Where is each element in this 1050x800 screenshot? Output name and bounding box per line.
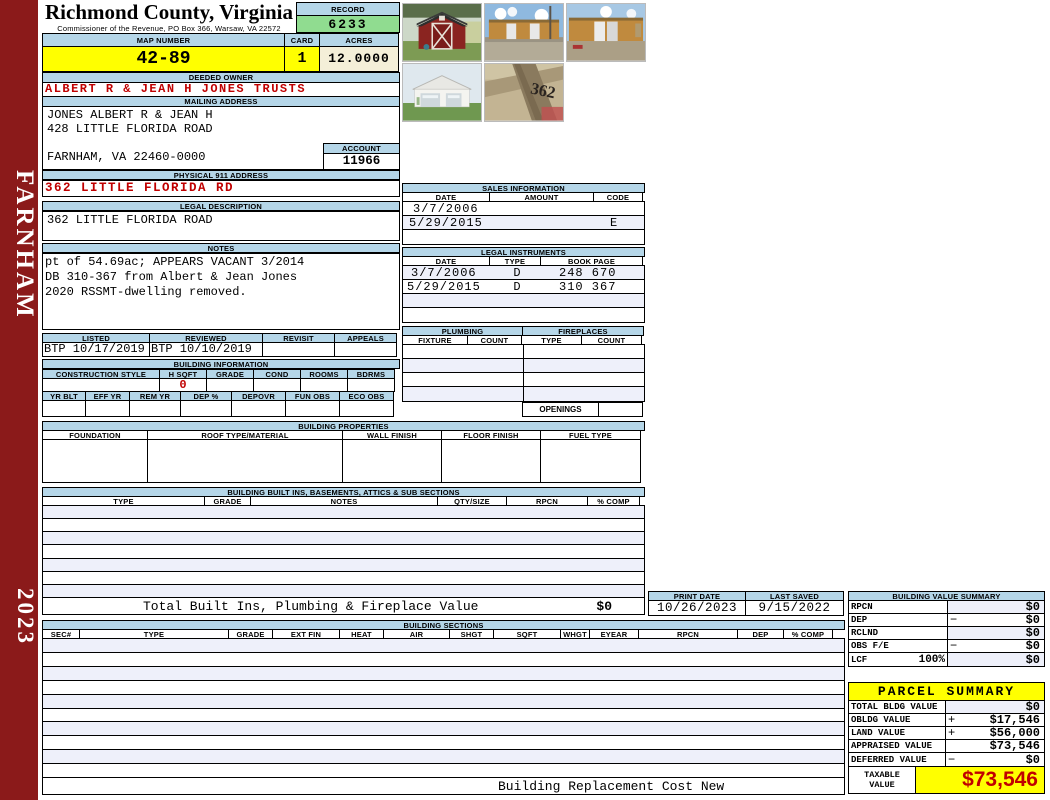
legal-description-label: LEGAL DESCRIPTION	[42, 201, 400, 211]
building-information-title: BUILDING INFORMATION	[42, 359, 400, 369]
yrblt-value	[42, 400, 86, 417]
plumbing-row	[403, 359, 644, 373]
bi-notes-header: NOTES	[250, 496, 438, 506]
sales-information: SALES INFORMATION DATE AMOUNT CODE 3/7/2…	[402, 183, 645, 245]
table-row	[43, 545, 644, 558]
li-type-header: TYPE	[489, 256, 541, 266]
air-header: AIR	[383, 629, 450, 639]
photo-empty-slot	[566, 63, 646, 121]
table-row	[43, 532, 644, 545]
mailing-line: 428 LITTLE FLORIDA ROAD	[47, 122, 395, 136]
plumbing-fireplaces-col-headers: FIXTURE COUNT TYPE COUNT	[402, 335, 645, 345]
parcel-operator: −	[946, 753, 960, 767]
sec-header: SEC#	[42, 629, 80, 639]
record-label: RECORD	[296, 2, 400, 16]
parcel-row: LAND VALUE +$56,000	[848, 726, 1045, 740]
bvs-row: LCF100% $0	[848, 652, 1045, 667]
plumbing-row	[403, 345, 644, 359]
legal-instrument-row: 5/29/2015 D 310 367	[403, 280, 644, 294]
parcel-row: TOTAL BLDG VALUE $0	[848, 700, 1045, 714]
table-row	[43, 736, 844, 750]
table-row	[43, 559, 644, 572]
building-sections: BUILDING SECTIONS SEC# TYPE GRADE EXT FI…	[42, 620, 845, 795]
parcel-operator: +	[946, 713, 960, 727]
bvs-row: DEP −$0	[848, 613, 1045, 627]
bvs-operator: −	[948, 613, 962, 627]
bvs-value: $0	[962, 626, 1044, 640]
plumbing-count-header: COUNT	[467, 335, 522, 345]
bvs-lcf-percent: 100%	[919, 654, 945, 666]
dep-pct-value	[180, 400, 232, 417]
legal-instruments: LEGAL INSTRUMENTS DATE TYPE BOOK PAGE 3/…	[402, 247, 645, 323]
table-row	[43, 695, 844, 709]
table-row	[43, 667, 844, 681]
remyr-value	[129, 400, 181, 417]
parcel-label: LAND VALUE	[848, 726, 946, 740]
mailing-address-box: JONES ALBERT R & JEAN H 428 LITTLE FLORI…	[42, 106, 400, 170]
photo-tan-storage-buildings-2[interactable]	[566, 3, 646, 62]
photo-grid: 362	[402, 3, 648, 122]
fixture-header: FIXTURE	[402, 335, 468, 345]
photo-post-with-362-number[interactable]: 362	[484, 63, 564, 122]
acres-label: ACRES	[319, 33, 399, 47]
parcel-row: APPRAISED VALUE $73,546	[848, 739, 1045, 753]
physical-address-value: 362 LITTLE FLORIDA RD	[42, 180, 400, 197]
physical-address-label: PHYSICAL 911 ADDRESS	[42, 170, 400, 180]
table-row	[43, 585, 644, 597]
acres-value: 12.0000	[319, 46, 399, 72]
li-bookpage: 310 367	[543, 280, 643, 294]
li-type: D	[491, 280, 543, 294]
card-label: CARD	[284, 33, 320, 47]
legal-instruments-rows: 3/7/2006 D 248 670 5/29/2015 D 310 367	[402, 265, 645, 323]
li-type: D	[491, 266, 543, 280]
bvs-operator: −	[948, 639, 962, 653]
bs-type-header: TYPE	[79, 629, 229, 639]
parcel-summary-rows: TOTAL BLDG VALUE $0 OBLDG VALUE +$17,546…	[848, 700, 1045, 794]
parcel-value: $17,546	[960, 713, 1044, 727]
legal-instrument-row	[403, 294, 644, 308]
parcel-summary-title: PARCEL SUMMARY	[848, 682, 1045, 701]
parcel-label: OBLDG VALUE	[848, 713, 946, 727]
wall-finish-value	[342, 439, 442, 483]
table-row	[43, 572, 644, 585]
eyear-header: EYEAR	[589, 629, 639, 639]
card-value: 1	[284, 46, 320, 72]
bi-type-header: TYPE	[42, 496, 205, 506]
revisit-value	[262, 342, 335, 357]
bvs-label: OBS F/E	[848, 639, 948, 653]
bi-qty-header: QTY/SIZE	[437, 496, 507, 506]
parcel-value: $0	[960, 753, 1044, 767]
photo-red-barn-shed[interactable]	[402, 3, 482, 62]
photo-tan-storage-buildings-1[interactable]	[484, 3, 564, 62]
table-row	[43, 709, 844, 723]
map-card-acres-values: 42-89 1 12.0000	[42, 46, 400, 72]
district-name: FARNHAM	[0, 160, 38, 330]
record-number: 6233	[296, 15, 400, 33]
plumbing-row	[403, 387, 644, 401]
bvs-rows: RPCN $0 DEP −$0 RCLND $0 OBS F/E −$0 LCF…	[848, 600, 1045, 667]
county-header: Richmond County, Virginia Commissioner o…	[42, 1, 296, 33]
li-bookpage: 248 670	[543, 266, 643, 280]
built-ins-total-value: $0	[478, 599, 644, 614]
table-row	[43, 722, 844, 736]
bs-comp-header: % COMP	[783, 629, 833, 639]
deeded-owner-name: ALBERT R & JEAN H JONES TRUSTS	[42, 82, 400, 97]
reviewed-value: BTP 10/10/2019	[149, 342, 263, 357]
photo-white-garage[interactable]	[402, 63, 482, 122]
note-line: pt of 54.69ac; APPEARS VACANT 3/2014	[45, 255, 397, 270]
table-row	[43, 639, 844, 653]
sales-amount-header: AMOUNT	[489, 192, 594, 202]
bvs-value: $0	[962, 613, 1044, 627]
ecoobs-value	[339, 400, 394, 417]
bi-comp-header: % COMP	[587, 496, 640, 506]
building-properties-values	[42, 439, 645, 483]
extfin-header: EXT FIN	[272, 629, 340, 639]
parcel-summary: PARCEL SUMMARY TOTAL BLDG VALUE $0 OBLDG…	[848, 682, 1045, 794]
table-row	[43, 750, 844, 764]
hsqft-value: 0	[159, 378, 207, 392]
legal-description-value: 362 LITTLE FLORIDA ROAD	[42, 211, 400, 241]
note-line: 2020 RSSMT-dwelling removed.	[45, 285, 397, 300]
legal-instruments-col-headers: DATE TYPE BOOK PAGE	[402, 256, 645, 266]
parcel-row: OBLDG VALUE +$17,546	[848, 713, 1045, 727]
sales-row: 3/7/2006	[403, 202, 644, 216]
notes-box: pt of 54.69ac; APPEARS VACANT 3/2014 DB …	[42, 253, 400, 330]
building-value-summary: BUILDING VALUE SUMMARY RPCN $0 DEP −$0 R…	[848, 591, 1045, 667]
built-ins-total-row: Total Built Ins, Plumbing & Fireplace Va…	[42, 597, 645, 615]
building-replacement-footer: Building Replacement Cost New	[42, 777, 845, 795]
bvs-value: $0	[962, 653, 1044, 667]
last-saved-value: 9/15/2022	[745, 600, 844, 616]
legal-instrument-row	[403, 308, 644, 322]
table-row	[43, 506, 644, 519]
built-ins-total-label: Total Built Ins, Plumbing & Fireplace Va…	[43, 599, 478, 614]
bvs-label: LCF	[851, 655, 867, 665]
built-ins-section: BUILDING BUILT INS, BASEMENTS, ATTICS & …	[42, 487, 645, 615]
bvs-row: RPCN $0	[848, 600, 1045, 614]
construction-style-value	[42, 378, 160, 392]
building-info-values-2	[42, 400, 400, 417]
funobs-value	[285, 400, 340, 417]
map-number-label: MAP NUMBER	[42, 33, 285, 47]
print-info: PRINT DATE LAST SAVED 10/26/2023 9/15/20…	[648, 591, 845, 616]
fuel-type-value	[540, 439, 641, 483]
county-title: Richmond County, Virginia	[42, 1, 296, 24]
bi-grade-header: GRADE	[204, 496, 251, 506]
built-ins-col-headers: TYPE GRADE NOTES QTY/SIZE RPCN % COMP	[42, 496, 645, 506]
parcel-operator: +	[946, 726, 960, 740]
parcel-label: TOTAL BLDG VALUE	[848, 700, 946, 714]
parcel-label: DEFERRED VALUE	[848, 752, 946, 767]
parcel-value: $73,546	[960, 739, 1044, 753]
openings-label: OPENINGS	[522, 402, 599, 417]
taxable-value-amount: $73,546	[915, 766, 1045, 794]
print-info-values: 10/26/2023 9/15/2022	[648, 600, 845, 616]
print-date-value: 10/26/2023	[648, 600, 746, 616]
bs-dep-header: DEP	[737, 629, 784, 639]
listed-value: BTP 10/17/2019	[42, 342, 150, 357]
sales-date-header: DATE	[402, 192, 490, 202]
li-date-header: DATE	[402, 256, 490, 266]
grade-value	[206, 378, 254, 392]
map-number-value: 42-89	[42, 46, 285, 72]
tax-year: 2023	[0, 572, 38, 662]
cond-value	[253, 378, 301, 392]
review-values: BTP 10/17/2019 BTP 10/10/2019	[42, 342, 400, 357]
account-number: 11966	[323, 153, 400, 170]
sales-code-header: CODE	[593, 192, 643, 202]
bvs-label: RPCN	[848, 600, 948, 614]
plumbing-row	[403, 373, 644, 387]
property-record-card: FARNHAM 2023 Richmond County, Virginia C…	[0, 0, 1050, 800]
rooms-value	[300, 378, 348, 392]
table-row	[43, 519, 644, 532]
bvs-row: OBS F/E −$0	[848, 639, 1045, 653]
mailing-line: JONES ALBERT R & JEAN H	[47, 108, 395, 122]
parcel-value: $56,000	[960, 726, 1044, 740]
plumbing-fireplaces: PLUMBING FIREPLACES FIXTURE COUNT TYPE C…	[402, 326, 645, 417]
roof-value	[147, 439, 343, 483]
openings-row: OPENINGS	[402, 402, 645, 417]
li-bookpage-header: BOOK PAGE	[540, 256, 643, 266]
sale-code: E	[610, 216, 644, 230]
whgt-header: WHGT	[560, 629, 590, 639]
bs-grade-header: GRADE	[228, 629, 273, 639]
bvs-value: $0	[962, 600, 1044, 614]
table-row	[43, 764, 844, 777]
built-ins-rows	[42, 505, 645, 598]
district-sidebar: FARNHAM 2023	[0, 0, 38, 800]
account-box: ACCOUNT 11966	[323, 143, 400, 170]
sale-date: 3/7/2006	[403, 202, 523, 216]
openings-value	[598, 402, 643, 417]
bdrms-value	[347, 378, 395, 392]
heat-header: HEAT	[339, 629, 384, 639]
foundation-value	[42, 439, 148, 483]
sales-col-headers: DATE AMOUNT CODE	[402, 192, 645, 202]
sale-date: 5/29/2015	[403, 216, 523, 230]
building-properties: BUILDING PROPERTIES FOUNDATION ROOF TYPE…	[42, 421, 645, 483]
building-sections-col-headers: SEC# TYPE GRADE EXT FIN HEAT AIR SHGT SQ…	[42, 629, 845, 639]
sqft-header: SQFT	[493, 629, 561, 639]
bi-rpcn-header: RPCN	[506, 496, 588, 506]
taxable-value-label: TAXABLE VALUE	[848, 766, 916, 794]
parcel-row: DEFERRED VALUE −$0	[848, 752, 1045, 767]
effyr-value	[85, 400, 130, 417]
fireplace-count-header: COUNT	[581, 335, 642, 345]
plumbing-fireplaces-rows	[402, 344, 645, 402]
parcel-value: $0	[960, 700, 1044, 714]
shgt-header: SHGT	[449, 629, 494, 639]
record-box: RECORD 6233	[296, 2, 400, 33]
sales-row: 5/29/2015 E	[403, 216, 644, 230]
taxable-value-row: TAXABLE VALUE $73,546	[848, 766, 1045, 794]
bvs-label: DEP	[848, 613, 948, 627]
notes-label: NOTES	[42, 243, 400, 253]
bvs-value: $0	[962, 639, 1044, 653]
table-row	[43, 653, 844, 667]
sales-rows: 3/7/2006 5/29/2015 E	[402, 201, 645, 245]
commissioner-line: Commissioner of the Revenue, PO Box 366,…	[42, 24, 296, 33]
legal-instrument-row: 3/7/2006 D 248 670	[403, 266, 644, 280]
floor-finish-value	[441, 439, 541, 483]
sales-row	[403, 230, 644, 244]
map-card-acres-headers: MAP NUMBER CARD ACRES	[42, 33, 400, 47]
li-date: 3/7/2006	[403, 266, 491, 280]
building-sections-rows	[42, 638, 845, 778]
bvs-row: RCLND $0	[848, 626, 1045, 640]
appeals-value	[334, 342, 397, 357]
fireplace-type-header: TYPE	[521, 335, 582, 345]
li-date: 5/29/2015	[403, 280, 491, 294]
note-line: DB 310-367 from Albert & Jean Jones	[45, 270, 397, 285]
depovr-value	[231, 400, 286, 417]
bs-rpcn-header: RPCN	[638, 629, 738, 639]
table-row	[43, 681, 844, 695]
parcel-label: APPRAISED VALUE	[848, 739, 946, 753]
bvs-label: RCLND	[848, 626, 948, 640]
building-info-values-1: 0	[42, 378, 400, 392]
